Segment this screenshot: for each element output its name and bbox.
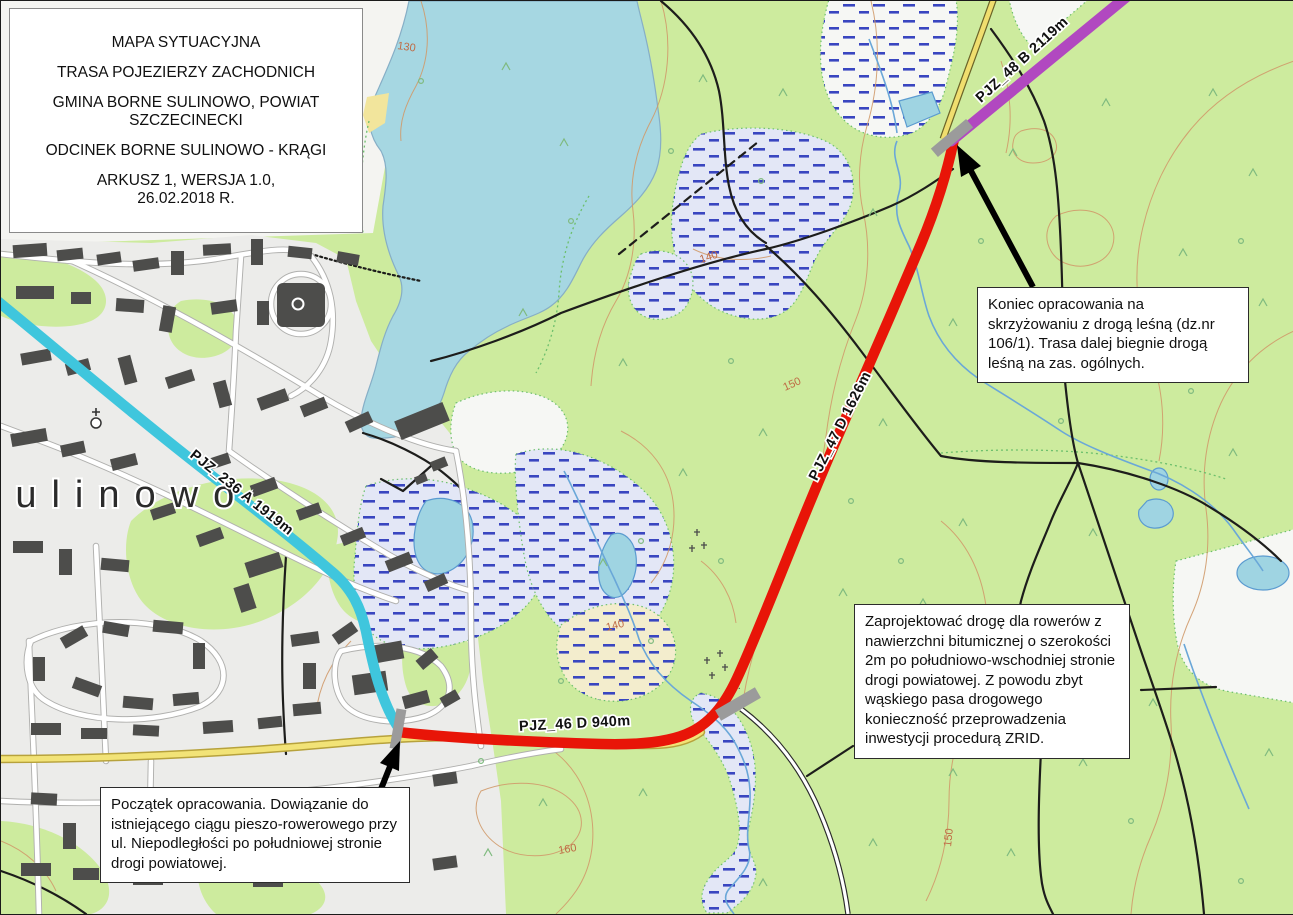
building (171, 251, 184, 275)
title-line: GMINA BORNE SULINOWO, POWIAT SZCZECINECK… (24, 94, 348, 130)
building (203, 720, 234, 734)
building (81, 728, 107, 739)
building (33, 657, 45, 681)
building (16, 286, 54, 299)
building (101, 558, 130, 572)
building (13, 541, 43, 553)
building (193, 643, 205, 669)
building (31, 723, 61, 735)
building (71, 292, 91, 304)
building (63, 823, 76, 849)
title-line: 26.02.2018 R. (24, 190, 348, 208)
building (133, 724, 160, 736)
title-box: MAPA SYTUACYJNA TRASA POJEZIERZY ZACHODN… (9, 8, 363, 233)
note-start-of-section: Początek opracowania. Dowiązanie do istn… (100, 787, 410, 883)
building (31, 792, 58, 805)
building (303, 663, 316, 689)
building (116, 298, 145, 313)
note-end-of-section: Koniec opracowania na skrzyżowaniu z dro… (977, 287, 1249, 383)
building (257, 301, 269, 325)
building (73, 868, 99, 880)
town-label: Sulinowo (1, 474, 249, 516)
map-page: R. Sulinowo PJZ_236 A 1919m PJZ_46 D 940… (0, 0, 1293, 915)
svg-text:150: 150 (942, 828, 956, 848)
building (59, 549, 72, 575)
title-line: MAPA SYTUACYJNA (24, 34, 348, 52)
title-line: ARKUSZ 1, WERSJA 1.0, (24, 172, 348, 190)
tower-block (277, 283, 325, 327)
building (251, 239, 263, 265)
svg-text:130: 130 (397, 40, 417, 54)
title-line: ODCINEK BORNE SULINOWO - KRĄGI (24, 142, 348, 160)
building (203, 243, 232, 255)
title-line: TRASA POJEZIERZY ZACHODNICH (24, 64, 348, 82)
building (13, 243, 48, 258)
building (173, 692, 200, 706)
note-design-requirement: Zaprojektować drogę dla rowerów z nawier… (854, 604, 1130, 759)
building (21, 863, 51, 876)
building (293, 702, 322, 716)
